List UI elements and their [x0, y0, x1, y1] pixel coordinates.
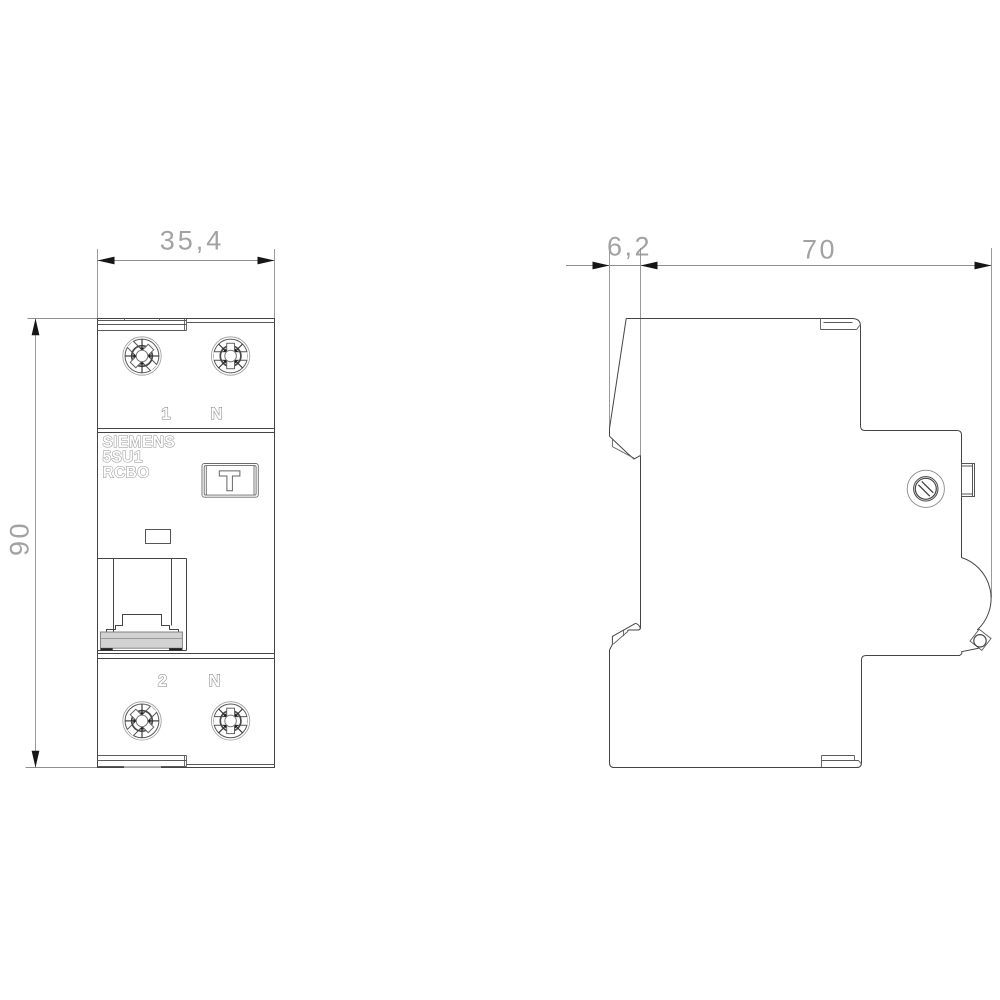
svg-text:1: 1	[161, 404, 170, 423]
svg-text:RCBO: RCBO	[103, 465, 150, 482]
svg-text:6,2: 6,2	[607, 232, 652, 262]
svg-text:2: 2	[158, 671, 167, 690]
svg-text:N: N	[208, 671, 220, 690]
svg-text:90: 90	[4, 521, 34, 556]
svg-text:70: 70	[802, 235, 837, 265]
svg-text:N: N	[210, 404, 222, 423]
svg-text:35,4: 35,4	[160, 226, 225, 256]
